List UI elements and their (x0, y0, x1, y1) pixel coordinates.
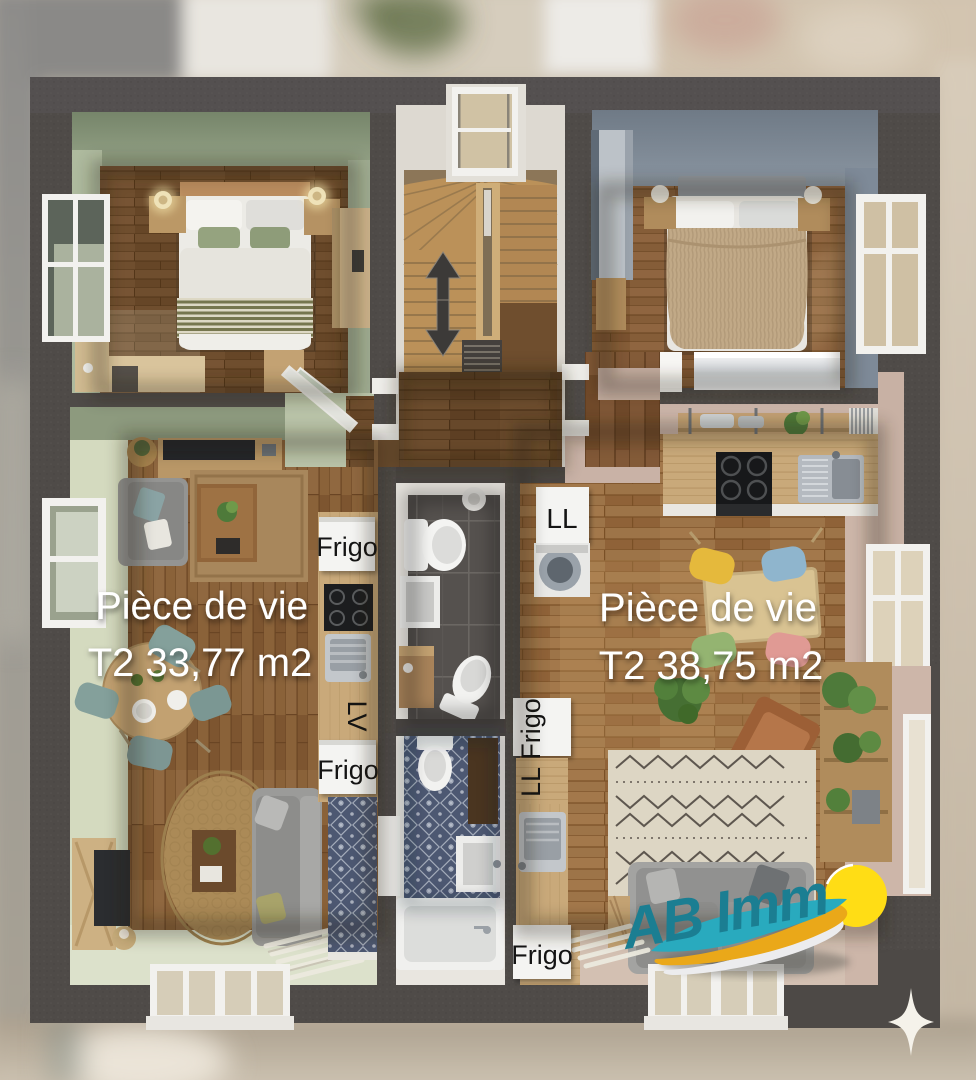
svg-text:Pièce de vie: Pièce de vie (599, 586, 817, 630)
svg-text:LL: LL (546, 503, 577, 534)
svg-text:Frigo: Frigo (511, 940, 573, 970)
svg-text:Pièce de vie: Pièce de vie (96, 585, 308, 628)
svg-text:T2 33,77 m2: T2 33,77 m2 (88, 641, 313, 685)
svg-text:T2 38,75 m2: T2 38,75 m2 (599, 644, 824, 688)
